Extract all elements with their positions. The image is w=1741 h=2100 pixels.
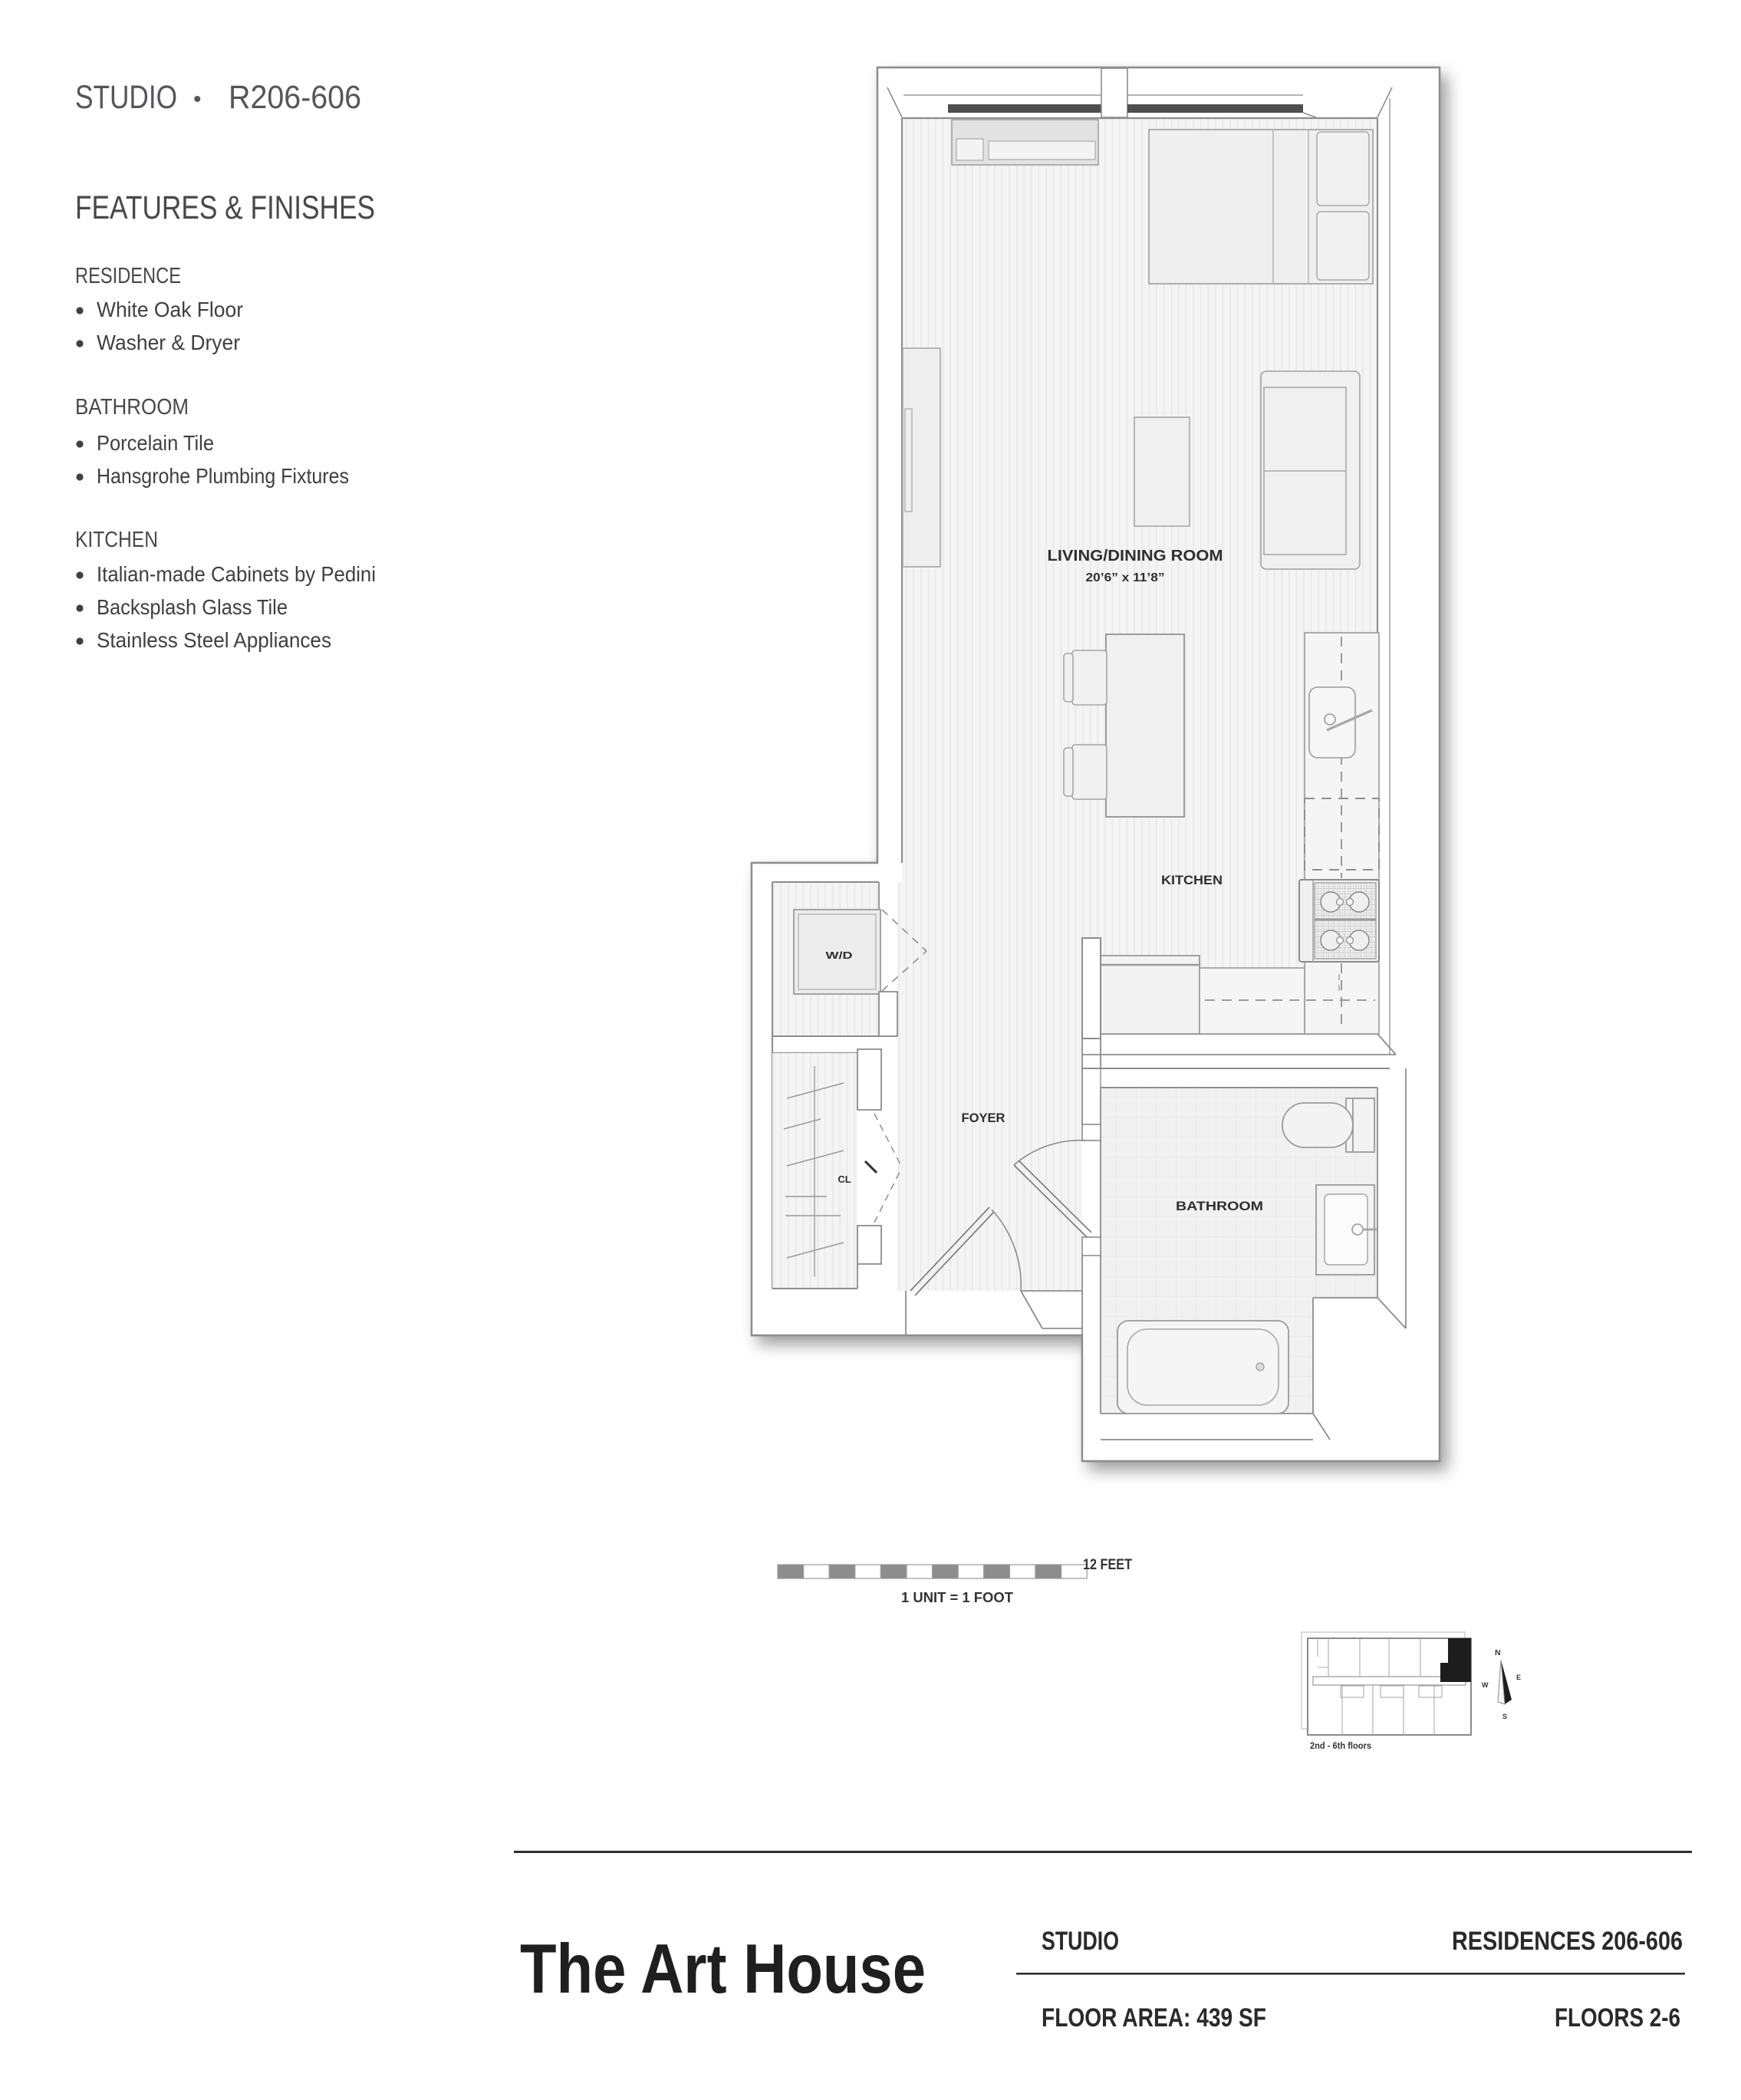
svg-text:BATHROOM: BATHROOM (1176, 1199, 1263, 1213)
svg-text:FEATURES & FINISHES: FEATURES & FINISHES (75, 189, 375, 226)
svg-text:BATHROOM: BATHROOM (75, 395, 189, 420)
svg-text:STUDIO: STUDIO (75, 79, 177, 116)
svg-text:W: W (1482, 1681, 1489, 1689)
svg-text:White Oak Floor: White Oak Floor (97, 298, 243, 321)
svg-text:Porcelain Tile: Porcelain Tile (97, 431, 214, 455)
svg-text:KITCHEN: KITCHEN (1161, 873, 1223, 887)
svg-text:Backsplash Glass Tile: Backsplash Glass Tile (97, 595, 288, 619)
svg-text:FLOORS 2-6: FLOORS 2-6 (1555, 2003, 1680, 2033)
svg-text:CL: CL (838, 1173, 851, 1185)
svg-text:RESIDENCE: RESIDENCE (75, 264, 181, 288)
svg-text:LIVING/DINING ROOM: LIVING/DINING ROOM (1048, 548, 1223, 564)
svg-text:The Art House: The Art House (520, 1930, 926, 2008)
svg-text:STUDIO: STUDIO (1042, 1927, 1119, 1956)
svg-text:W/D: W/D (826, 950, 853, 961)
svg-text:RESIDENCES 206-606: RESIDENCES 206-606 (1452, 1927, 1683, 1956)
svg-text:Hansgrohe Plumbing Fixtures: Hansgrohe Plumbing Fixtures (97, 464, 349, 488)
svg-text:1 UNIT = 1 FOOT: 1 UNIT = 1 FOOT (901, 1589, 1014, 1605)
svg-text:S: S (1502, 1713, 1507, 1720)
svg-text:KITCHEN: KITCHEN (75, 528, 158, 552)
svg-text:Italian-made Cabinets by Pedin: Italian-made Cabinets by Pedini (97, 562, 376, 586)
svg-text:20’6” x 11’8”: 20’6” x 11’8” (1086, 571, 1165, 584)
svg-text:•: • (193, 87, 202, 112)
svg-text:FLOOR AREA: 439 SF: FLOOR AREA: 439 SF (1042, 2003, 1266, 2033)
svg-text:Stainless Steel Appliances: Stainless Steel Appliances (97, 628, 331, 652)
svg-text:Washer & Dryer: Washer & Dryer (97, 331, 240, 354)
svg-text:E: E (1516, 1674, 1521, 1681)
svg-text:2nd - 6th floors: 2nd - 6th floors (1310, 1742, 1371, 1751)
svg-text:12 FEET: 12 FEET (1083, 1557, 1132, 1573)
svg-text:R206-606: R206-606 (229, 79, 361, 116)
svg-text:FOYER: FOYER (962, 1111, 1005, 1125)
svg-text:N: N (1495, 1648, 1501, 1657)
